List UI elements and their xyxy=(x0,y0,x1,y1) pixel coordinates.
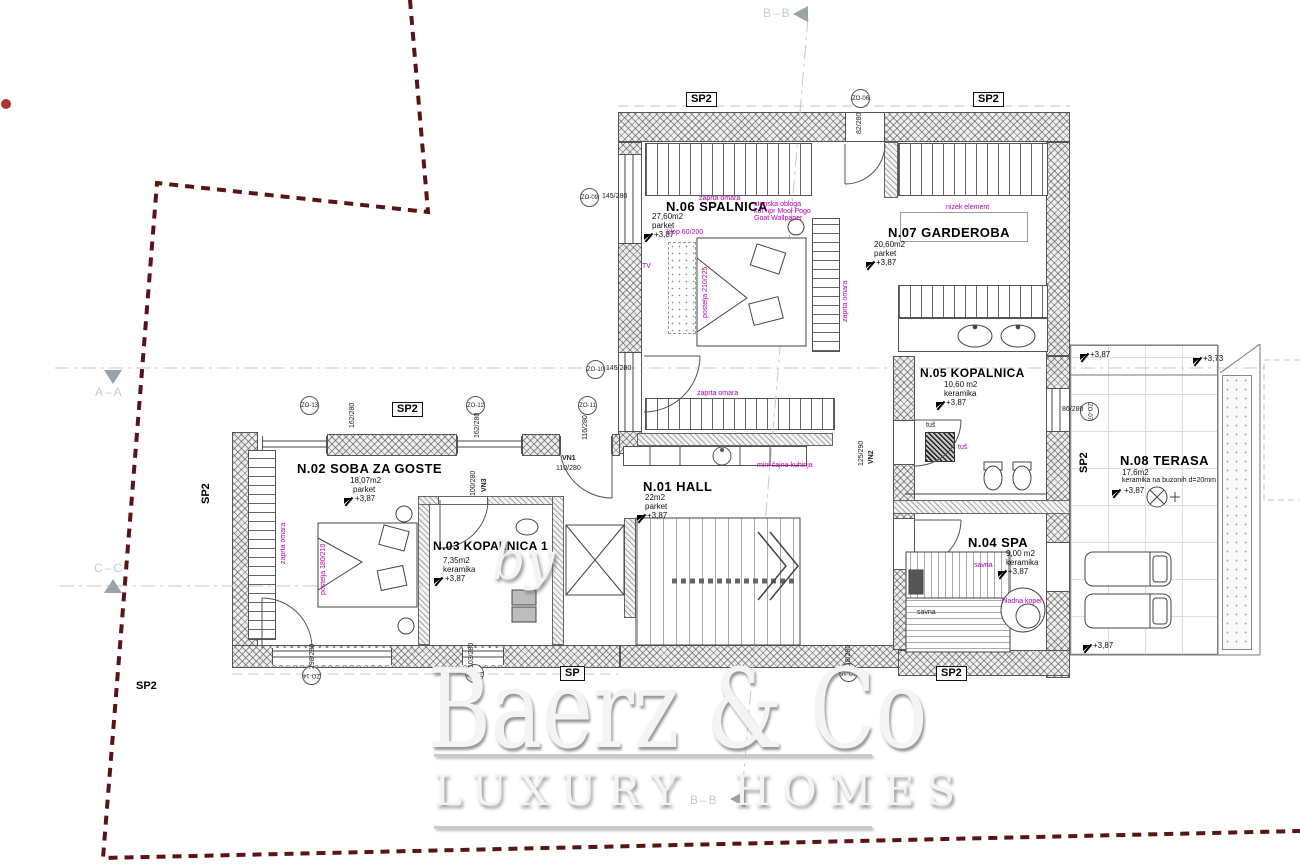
door-swings xyxy=(262,144,961,648)
door-opening-spa xyxy=(894,518,914,570)
watermark-by: by xyxy=(492,532,555,592)
closet-bedroom-right xyxy=(812,218,840,352)
room-name-n01: N.01 HALL xyxy=(643,479,712,494)
watermark-tagline: LUXURY HOMES xyxy=(434,766,967,815)
note-wallpaper-1: stenska obloga xyxy=(754,201,801,208)
room-area-n02: 18,07m2 xyxy=(350,476,381,485)
opening-size-zo11: 116/280 xyxy=(582,414,589,440)
elevation-flag-icon xyxy=(1080,353,1090,363)
panel-label-sp2-top-left: SP2 xyxy=(686,92,717,107)
room-elev-n04: +3,87 xyxy=(1008,567,1028,576)
elev-mark-terrace-bottom: +3,87 xyxy=(1093,641,1113,650)
label-tus-black: tuš xyxy=(926,422,935,429)
wall-top-guest-1 xyxy=(327,434,457,456)
label-savna-black: savna xyxy=(917,609,936,616)
opening-size-zo10: 145/280 xyxy=(606,365,631,372)
note-wallpaper-2: kot npr Mool Pogo xyxy=(754,208,811,215)
room-area-n07: 20,60m2 xyxy=(874,240,905,249)
elev-mark-terrace-top: +3,87 xyxy=(1090,350,1110,359)
room-material-n08: keramika na buzonih d=20mm xyxy=(1122,477,1216,484)
door-opening-zo06 xyxy=(845,113,885,141)
note-postelja-n06: postelja 210/225 xyxy=(702,266,709,318)
room-elev-n01: +3,87 xyxy=(647,511,667,520)
wall-elevator-right xyxy=(624,518,636,618)
room-material-n04: keramika xyxy=(1006,558,1038,567)
wardrobe-bedroom-top xyxy=(645,143,812,196)
room-material-n07: parket xyxy=(874,249,896,258)
red-dot xyxy=(1,99,11,109)
stairs xyxy=(636,518,800,645)
elevation-flag-icon xyxy=(1193,357,1203,367)
door-size-vn2: 125/290 xyxy=(858,438,865,466)
terrace-planter xyxy=(1222,375,1252,650)
opening-size-zo06: 82/280 xyxy=(856,108,863,134)
shower-tray xyxy=(925,432,955,462)
room-material-n05: keramika xyxy=(944,389,976,398)
opening-size-zo13: 162/280 xyxy=(349,402,356,428)
opening-size-zo09: 145/280 xyxy=(602,193,627,200)
note-zaprta-omara-bottom: zaprta omara xyxy=(697,390,738,397)
note-tus: tuš xyxy=(958,444,967,451)
opening-tag-zo10: ZO-10 xyxy=(586,360,605,379)
wardrobe-garderoba-top xyxy=(898,143,1048,196)
opening-tag-zo11: ZO-11 xyxy=(578,396,597,415)
door-size-vn1: 110/280 xyxy=(556,465,581,472)
panel-label-sp2-guest: SP2 xyxy=(392,402,423,417)
note-mini-kuhinja: mini čajna kuhinja xyxy=(757,462,813,469)
note-klop: klop 60/200 xyxy=(667,229,703,236)
window-opening-zo10 xyxy=(619,352,641,432)
wall-top-guest-3 xyxy=(612,434,620,456)
bed-n06 xyxy=(697,219,806,346)
elevation-flag-icon xyxy=(998,570,1008,580)
room-material-n01: parket xyxy=(645,502,667,511)
room-name-n05: N.05 KOPALNICA xyxy=(920,366,1025,380)
elevation-flag-icon xyxy=(344,497,354,507)
note-wallpaper-3: Goat Wallpaper xyxy=(754,215,802,222)
opening-tag-zo09: ZO-09 xyxy=(580,188,599,207)
window-opening-zo12 xyxy=(457,436,522,454)
note-zaprta-omara-top: zaprta omara xyxy=(699,195,740,202)
room-elev-n05: +3,87 xyxy=(946,398,966,407)
section-label-cc: C–C xyxy=(94,561,124,575)
shelving-guest-left xyxy=(248,450,276,640)
wall-top-upper-block xyxy=(618,112,1070,142)
opening-tag-zo06: ZO-06 xyxy=(851,89,870,108)
room-name-n07: N.07 GARDEROBA xyxy=(888,225,1010,240)
bed-n02 xyxy=(318,506,417,634)
watermark-rule-top xyxy=(434,754,872,757)
room-area-n05: 10,60 m2 xyxy=(944,380,977,389)
panel-label-sp2-top-right: SP2 xyxy=(973,92,1004,107)
panel-label-sp2-left: SP2 xyxy=(200,468,212,504)
room-area-n01: 22m2 xyxy=(645,493,665,502)
sauna xyxy=(906,552,1010,652)
room-material-n02: parket xyxy=(353,485,375,494)
note-postelja-n02: postelja 180/210 xyxy=(320,543,327,595)
door-tag-vn2: VN2 xyxy=(868,442,875,464)
wall-stub-bedroom-garderoba xyxy=(884,142,898,198)
elevation-flag-icon xyxy=(936,401,946,411)
note-savna: savna xyxy=(974,562,993,569)
elevation-flag-icon xyxy=(866,261,876,271)
door-size-vn3: 100/280 xyxy=(470,468,477,496)
room-material-n03: keramika xyxy=(443,565,475,574)
wall-n05-n04-divider xyxy=(893,500,1070,514)
bedroom-rug xyxy=(668,242,696,334)
elevation-flag-icon xyxy=(637,514,647,524)
section-label-aa: A–A xyxy=(95,385,124,399)
wall-top-guest-2 xyxy=(522,434,560,456)
panel-label-sp2-bottom-left: SP2 xyxy=(136,680,157,692)
panel-label-sp2-spa: SP2 xyxy=(936,666,967,681)
elevator xyxy=(566,525,624,595)
door-tag-vn3: VN3 xyxy=(481,470,488,492)
floor-plan-canvas: B–B B–B A–A C–C N.06 SPALNICA 27,60m2 pa… xyxy=(0,0,1300,867)
room-elev-n03: +3,87 xyxy=(445,574,465,583)
vanity-counter xyxy=(898,318,1048,352)
wardrobe-bedroom-bottom xyxy=(645,398,835,430)
elevation-flag-icon xyxy=(1112,489,1122,499)
wall-n02-n03-divider xyxy=(418,498,430,645)
elevation-flag-icon xyxy=(434,577,444,587)
room-name-n04: N.04 SPA xyxy=(968,535,1028,550)
terrace-floor xyxy=(1070,345,1218,655)
room-area-n03: 7,35m2 xyxy=(443,556,470,565)
opening-tag-zo13: ZO-13 xyxy=(300,396,319,415)
note-nizek-element: nizek element xyxy=(946,204,989,211)
opening-size-zo07: 86/280 xyxy=(1062,406,1083,413)
room-name-n02: N.02 SOBA ZA GOSTE xyxy=(297,461,442,476)
note-hladna-kopel: hladna kopel xyxy=(1002,598,1042,605)
wall-right-upper-block xyxy=(1046,142,1070,356)
opening-size-zo12: 162/280 xyxy=(474,412,481,438)
elev-mark-373: +3,73 xyxy=(1203,354,1223,363)
room-elev-n08: +3,87 xyxy=(1124,486,1144,495)
panel-label-sp2-right: SP2 xyxy=(1078,437,1090,473)
room-area-n04: 9,00 m2 xyxy=(1006,549,1035,558)
elevation-flag-icon xyxy=(1083,644,1093,654)
room-area-n08: 17,6m2 xyxy=(1122,468,1149,477)
watermark-rule-bottom xyxy=(434,826,872,829)
door-opening-terrace xyxy=(1047,542,1069,592)
cold-plunge xyxy=(1001,588,1045,632)
note-zaprta-omara-closet: zaprta omara xyxy=(842,276,849,322)
note-tv: TV xyxy=(642,263,651,270)
elevation-flag-icon xyxy=(644,233,654,243)
window-opening-zo14 xyxy=(272,648,392,665)
room-area-n06: 27,60m2 xyxy=(652,212,683,221)
opening-size-zo14: 298/280 xyxy=(309,643,316,669)
door-opening-vn2 xyxy=(894,420,914,465)
section-label-bb-top: B–B xyxy=(763,6,792,20)
wardrobe-garderoba-mid xyxy=(898,285,1048,318)
note-zaprta-omara-guest: zaprta omara xyxy=(280,518,287,564)
room-name-n08: N.08 TERASA xyxy=(1120,453,1209,468)
kitchenette-wall-band xyxy=(637,433,833,446)
room-elev-n07: +3,87 xyxy=(876,258,896,267)
door-opening-vn3 xyxy=(438,497,488,504)
room-elev-n02: +3,87 xyxy=(355,494,375,503)
door-tag-vn1: VN1 xyxy=(562,455,576,462)
